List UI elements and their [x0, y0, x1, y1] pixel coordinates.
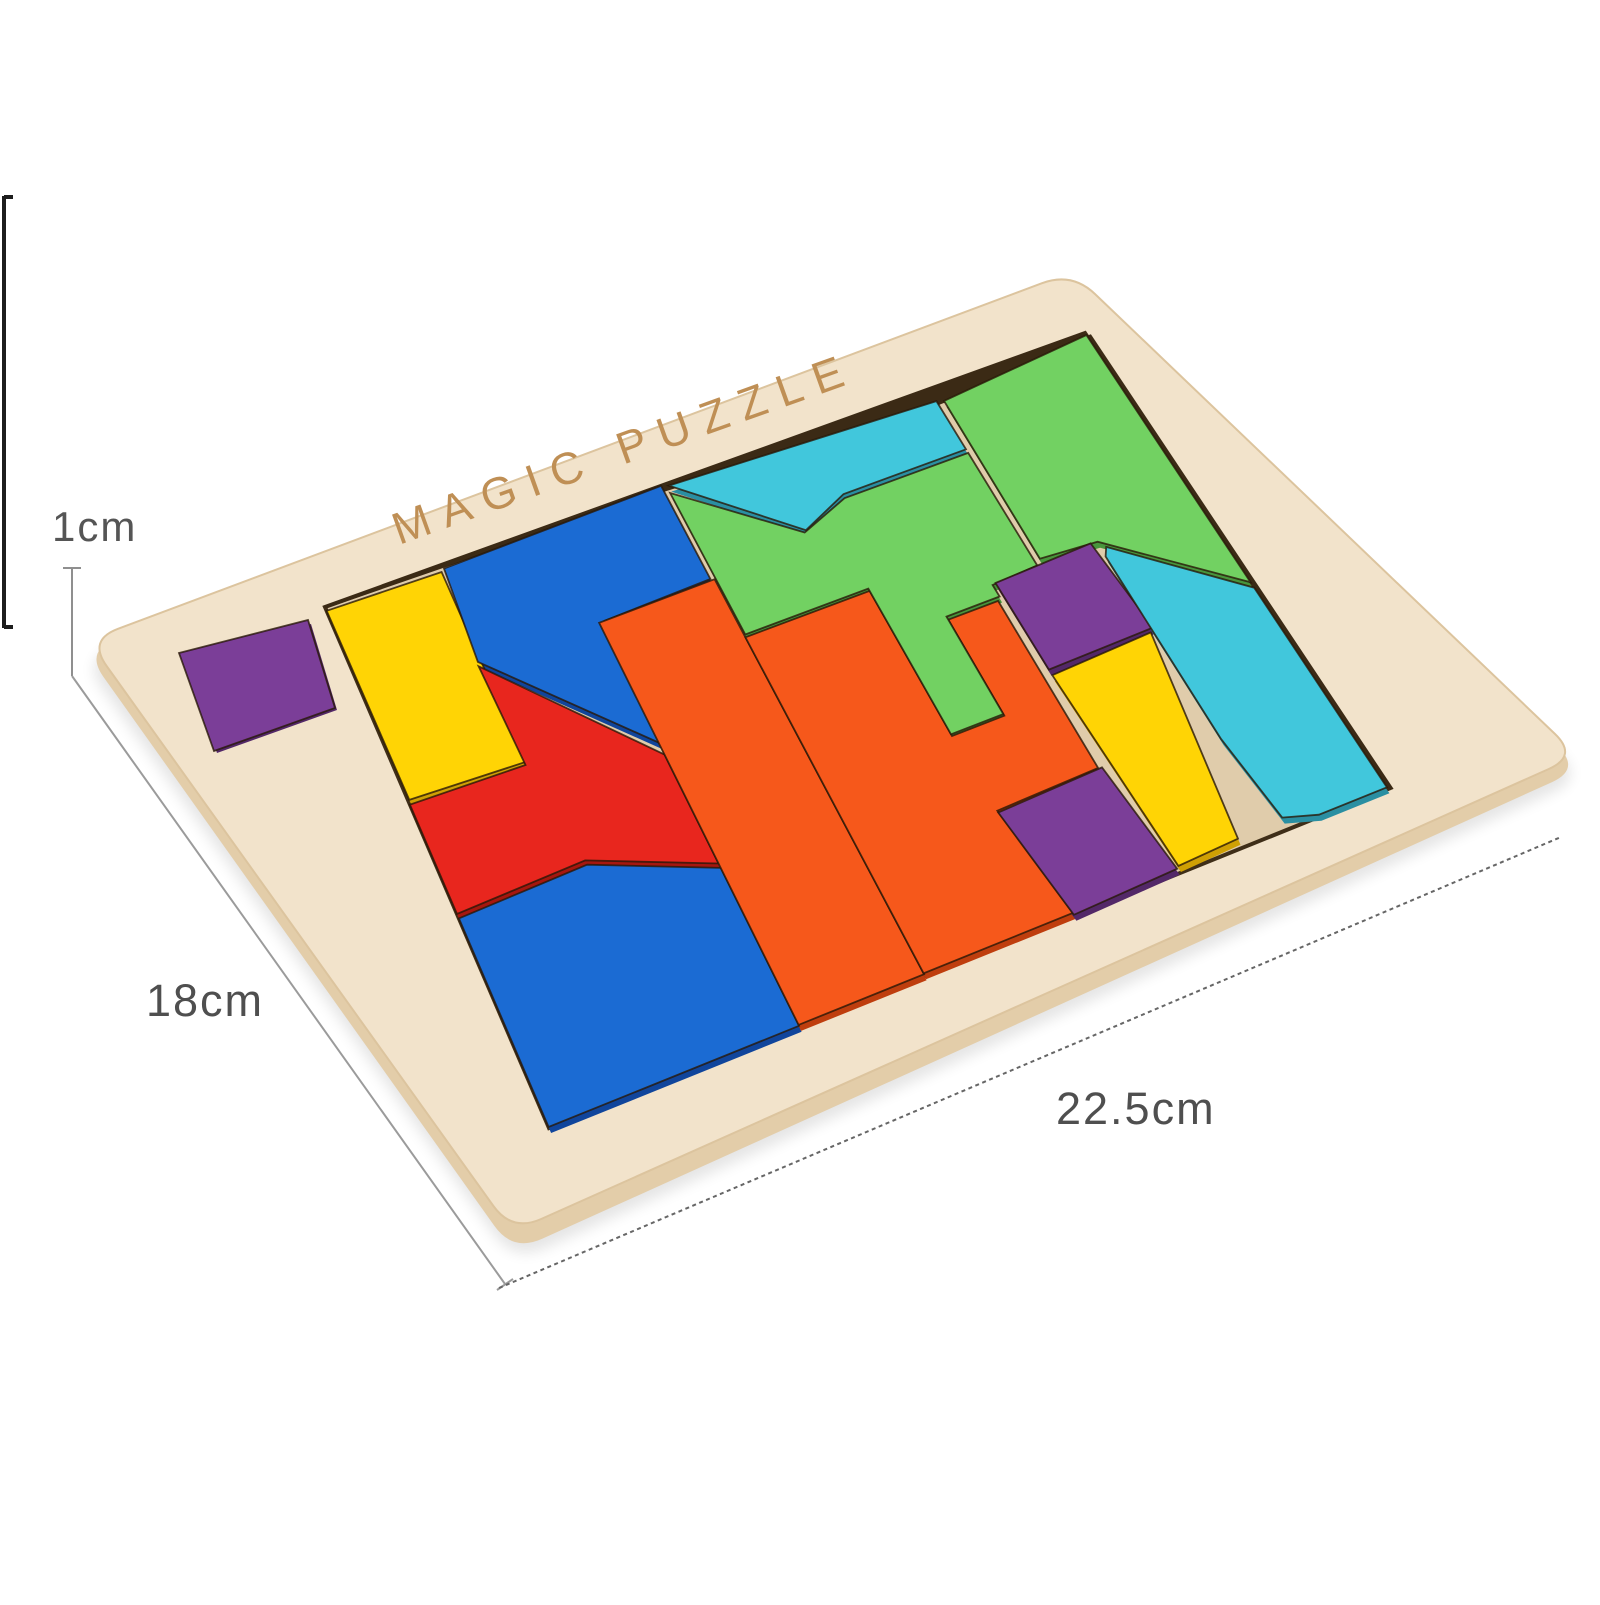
svg-text:18cm: 18cm	[146, 975, 264, 1026]
svg-text:22.5cm: 22.5cm	[1056, 1083, 1216, 1134]
svg-text:1cm: 1cm	[52, 503, 137, 550]
